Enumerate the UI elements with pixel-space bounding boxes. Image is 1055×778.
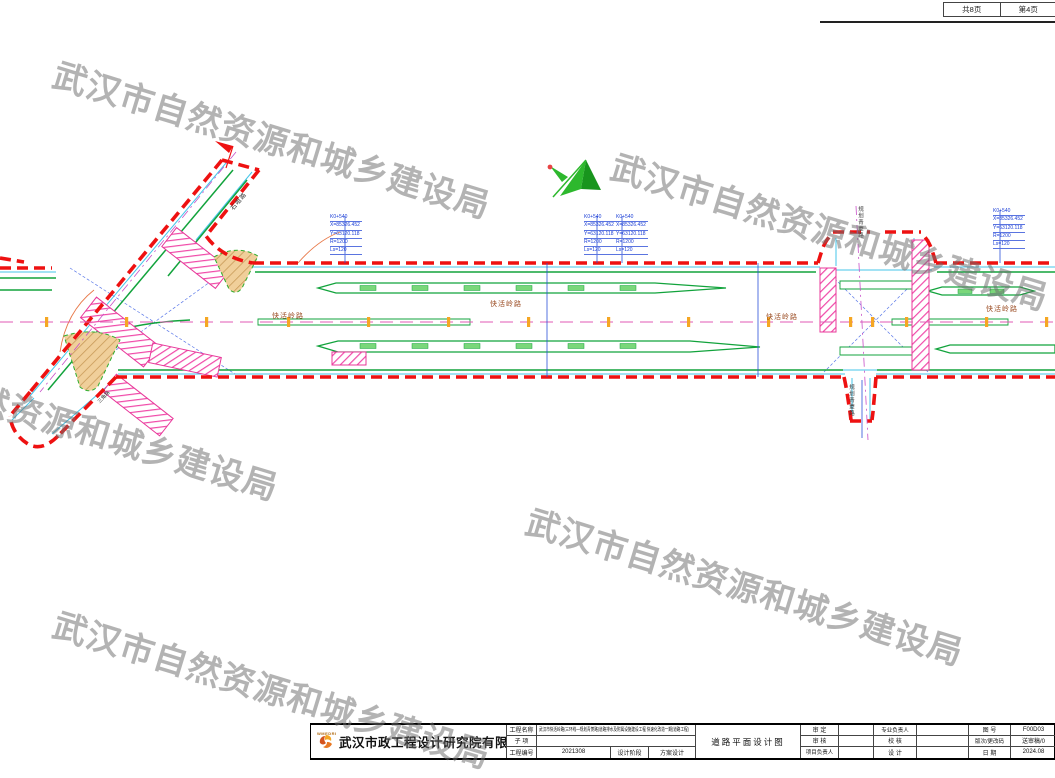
company-logo-icon: WMEDRI xyxy=(317,733,335,751)
project-leader-label: 项目负责人 xyxy=(801,747,839,758)
crosswalks xyxy=(80,228,929,436)
centerlines xyxy=(0,152,1055,440)
revision-value: 送审稿/0 xyxy=(1011,736,1055,747)
road-name-label: 快活岭路 xyxy=(272,311,304,321)
checked-value xyxy=(917,736,969,747)
sheet-border-line xyxy=(820,21,1055,23)
road-name-label: 快活岭路 xyxy=(766,312,798,322)
designed-value xyxy=(917,747,969,758)
title-block: WMEDRI 武汉市政工程设计研究院有限责任公司 工程名称 武汉市快活岭路(三环… xyxy=(310,723,1055,760)
callout-line: R=1200 xyxy=(616,239,648,247)
project-name-label: 工程名称 xyxy=(507,725,537,736)
callout-line: Ls=120 xyxy=(330,247,362,255)
planned-road-label-bottom: 规划青菱路 xyxy=(847,384,855,417)
revision-label: 版次/更改码 xyxy=(969,736,1011,747)
callout-line: Y=63120.118 xyxy=(993,225,1025,233)
drawing-no-label: 图 号 xyxy=(969,725,1011,736)
callout-line: X=85326.452 xyxy=(993,216,1025,224)
project-name-text: 武汉市快活岭路(三环线—规划青菱路)道路排水及附属设施建设工程 快速化改造一期(… xyxy=(539,726,689,733)
callout-line: R=1200 xyxy=(330,239,362,247)
north-arrow-icon xyxy=(548,160,601,197)
stage-value: 方案设计 xyxy=(649,747,696,758)
callout-line: Y=63120.118 xyxy=(330,231,362,239)
reviewed-label: 审 核 xyxy=(801,736,839,747)
callout-line: X=85326.452 xyxy=(584,222,616,230)
callout-line: X=85326.452 xyxy=(616,222,648,230)
callout-line: K0+540 xyxy=(993,208,1025,216)
callout-line: Y=63120.118 xyxy=(616,231,648,239)
designed-label: 设 计 xyxy=(874,747,917,758)
current-page-cell: 第4页 xyxy=(1001,3,1055,16)
callout-line: R=1200 xyxy=(993,233,1025,241)
date-value: 2024.08 xyxy=(1011,747,1055,758)
discipline-leader-label: 专业负责人 xyxy=(874,725,917,736)
project-no-value: 2021308 xyxy=(537,747,611,758)
curve-data-callout: K0+540 X=85326.452 Y=63120.118 R=1200 Ls… xyxy=(584,214,616,255)
project-leader-value xyxy=(839,747,874,758)
subitem-value xyxy=(537,736,696,747)
row-boundary xyxy=(0,160,1055,447)
curb-lines xyxy=(0,163,1055,434)
callout-line: Y=63120.118 xyxy=(584,231,616,239)
callout-line: Ls=120 xyxy=(993,241,1025,249)
curve-data-callout: K0+540 X=85326.452 Y=63120.118 R=1200 Ls… xyxy=(993,208,1025,249)
callout-line: K0+540 xyxy=(584,214,616,222)
callout-line: K0+540 xyxy=(616,214,648,222)
callout-line: K0+540 xyxy=(330,214,362,222)
discipline-leader-value xyxy=(917,725,969,736)
road-name-label: 快活岭路 xyxy=(490,299,522,309)
page-number-table: 共8页 第4页 xyxy=(943,2,1055,17)
company-cell: WMEDRI 武汉市政工程设计研究院有限责任公司 xyxy=(311,725,507,758)
approved-label: 审 定 xyxy=(801,725,839,736)
date-label: 日 期 xyxy=(969,747,1011,758)
callout-line: X=85326.452 xyxy=(330,222,362,230)
reviewed-value xyxy=(839,736,874,747)
checked-label: 校 核 xyxy=(874,736,917,747)
subitem-label: 子 项 xyxy=(507,736,537,747)
callout-line: Ls=120 xyxy=(616,247,648,255)
approved-value xyxy=(839,725,874,736)
project-no-label: 工程编号 xyxy=(507,747,537,758)
drawing-sheet: { "page_header": { "total_pages": "共8页",… xyxy=(0,0,1055,761)
project-name-value: 武汉市快活岭路(三环线—规划青菱路)道路排水及附属设施建设工程 快速化改造一期(… xyxy=(537,725,696,736)
road-name-label: 快活岭路 xyxy=(986,304,1018,314)
drawing-no-value: F00D03 xyxy=(1011,725,1055,736)
stage-label: 设计阶段 xyxy=(611,747,649,758)
callout-line: R=1200 xyxy=(584,239,616,247)
median-bands xyxy=(258,281,1055,355)
plan-canvas xyxy=(0,0,1055,761)
curve-data-callout: K0+540 X=85326.452 Y=63120.118 R=1200 Ls… xyxy=(330,214,362,255)
curve-data-callout: K0+540 X=85326.452 Y=63120.118 R=1200 Ls… xyxy=(616,214,648,255)
total-pages-cell: 共8页 xyxy=(944,3,1001,16)
company-name: 武汉市政工程设计研究院有限责任公司 xyxy=(339,732,507,751)
planned-road-label-top: 规划青菱路 xyxy=(856,206,864,239)
drawing-title: 道路平面设计图 xyxy=(696,725,801,758)
callout-line: Ls=120 xyxy=(584,247,616,255)
